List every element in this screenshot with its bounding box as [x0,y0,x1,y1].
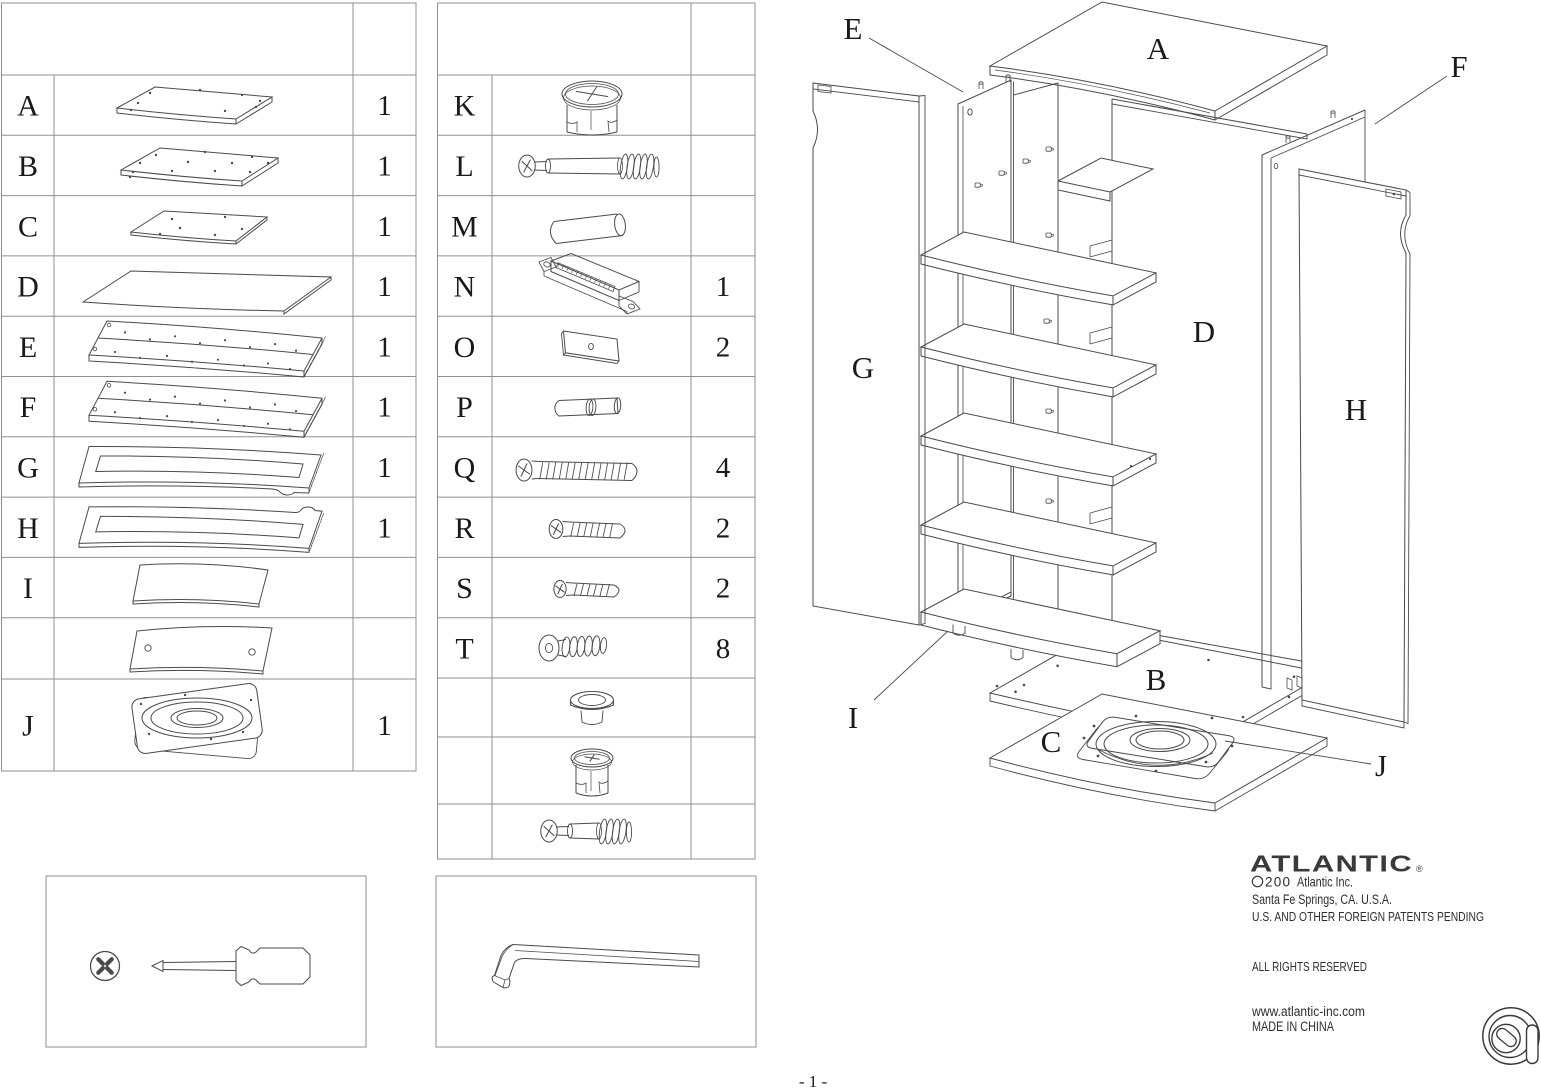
svg-text:- 1 -: - 1 - [799,1072,828,1091]
svg-text:ALL RIGHTS RESERVED: ALL RIGHTS RESERVED [1252,959,1367,974]
svg-text:G: G [17,451,39,484]
svg-text:1: 1 [716,271,731,303]
svg-text:L: L [455,150,473,183]
svg-text:D: D [1193,314,1215,349]
svg-text:R: R [454,512,474,545]
svg-text:M: M [451,210,478,243]
svg-text:Santa Fe Springs, CA. U.S.A.: Santa Fe Springs, CA. U.S.A. [1252,892,1392,907]
svg-text:U.S. AND OTHER FOREIGN PATENTS: U.S. AND OTHER FOREIGN PATENTS PENDING [1252,909,1484,924]
svg-text:E: E [844,11,863,46]
svg-text:8: 8 [716,633,731,665]
svg-text:G: G [852,350,874,385]
svg-text:®: ® [1416,864,1423,874]
svg-text:1: 1 [377,512,392,544]
svg-text:H: H [1345,392,1367,427]
svg-text:D: D [17,271,39,304]
svg-text:I: I [23,572,33,605]
svg-text:S: S [456,572,473,605]
svg-text:I: I [848,700,858,735]
svg-text:J: J [22,710,34,743]
svg-text:E: E [19,331,37,364]
svg-text:A: A [17,90,39,123]
svg-text:200: 200 [1265,875,1290,890]
svg-text:1: 1 [377,211,392,243]
svg-text:A: A [1147,31,1170,66]
svg-text:2: 2 [716,573,731,605]
svg-text:O: O [454,331,476,364]
svg-text:Atlantic Inc.: Atlantic Inc. [1297,875,1353,890]
svg-text:F: F [1450,49,1467,84]
svg-text:1: 1 [377,90,392,122]
svg-text:MADE IN CHINA: MADE IN CHINA [1252,1019,1334,1034]
svg-text:P: P [456,391,473,424]
svg-text:Q: Q [454,451,476,484]
svg-text:1: 1 [377,271,392,303]
svg-text:2: 2 [716,331,731,363]
svg-text:1: 1 [377,331,392,363]
svg-text:1: 1 [377,452,392,484]
svg-text:F: F [20,391,37,424]
svg-text:2: 2 [716,512,731,544]
svg-text:www.atlantic-inc.com: www.atlantic-inc.com [1251,1004,1365,1019]
svg-text:B: B [1146,662,1167,697]
svg-text:B: B [18,150,38,183]
svg-text:1: 1 [377,150,392,182]
svg-text:N: N [454,271,476,304]
svg-text:C: C [1041,724,1062,759]
svg-text:T: T [455,632,473,665]
svg-text:C: C [18,210,38,243]
svg-text:K: K [454,90,476,123]
svg-text:1: 1 [377,392,392,424]
svg-text:J: J [1375,748,1387,783]
svg-text:H: H [17,512,39,545]
svg-text:ATLANTIC: ATLANTIC [1250,851,1413,877]
svg-text:1: 1 [377,710,392,742]
svg-text:4: 4 [716,452,731,484]
